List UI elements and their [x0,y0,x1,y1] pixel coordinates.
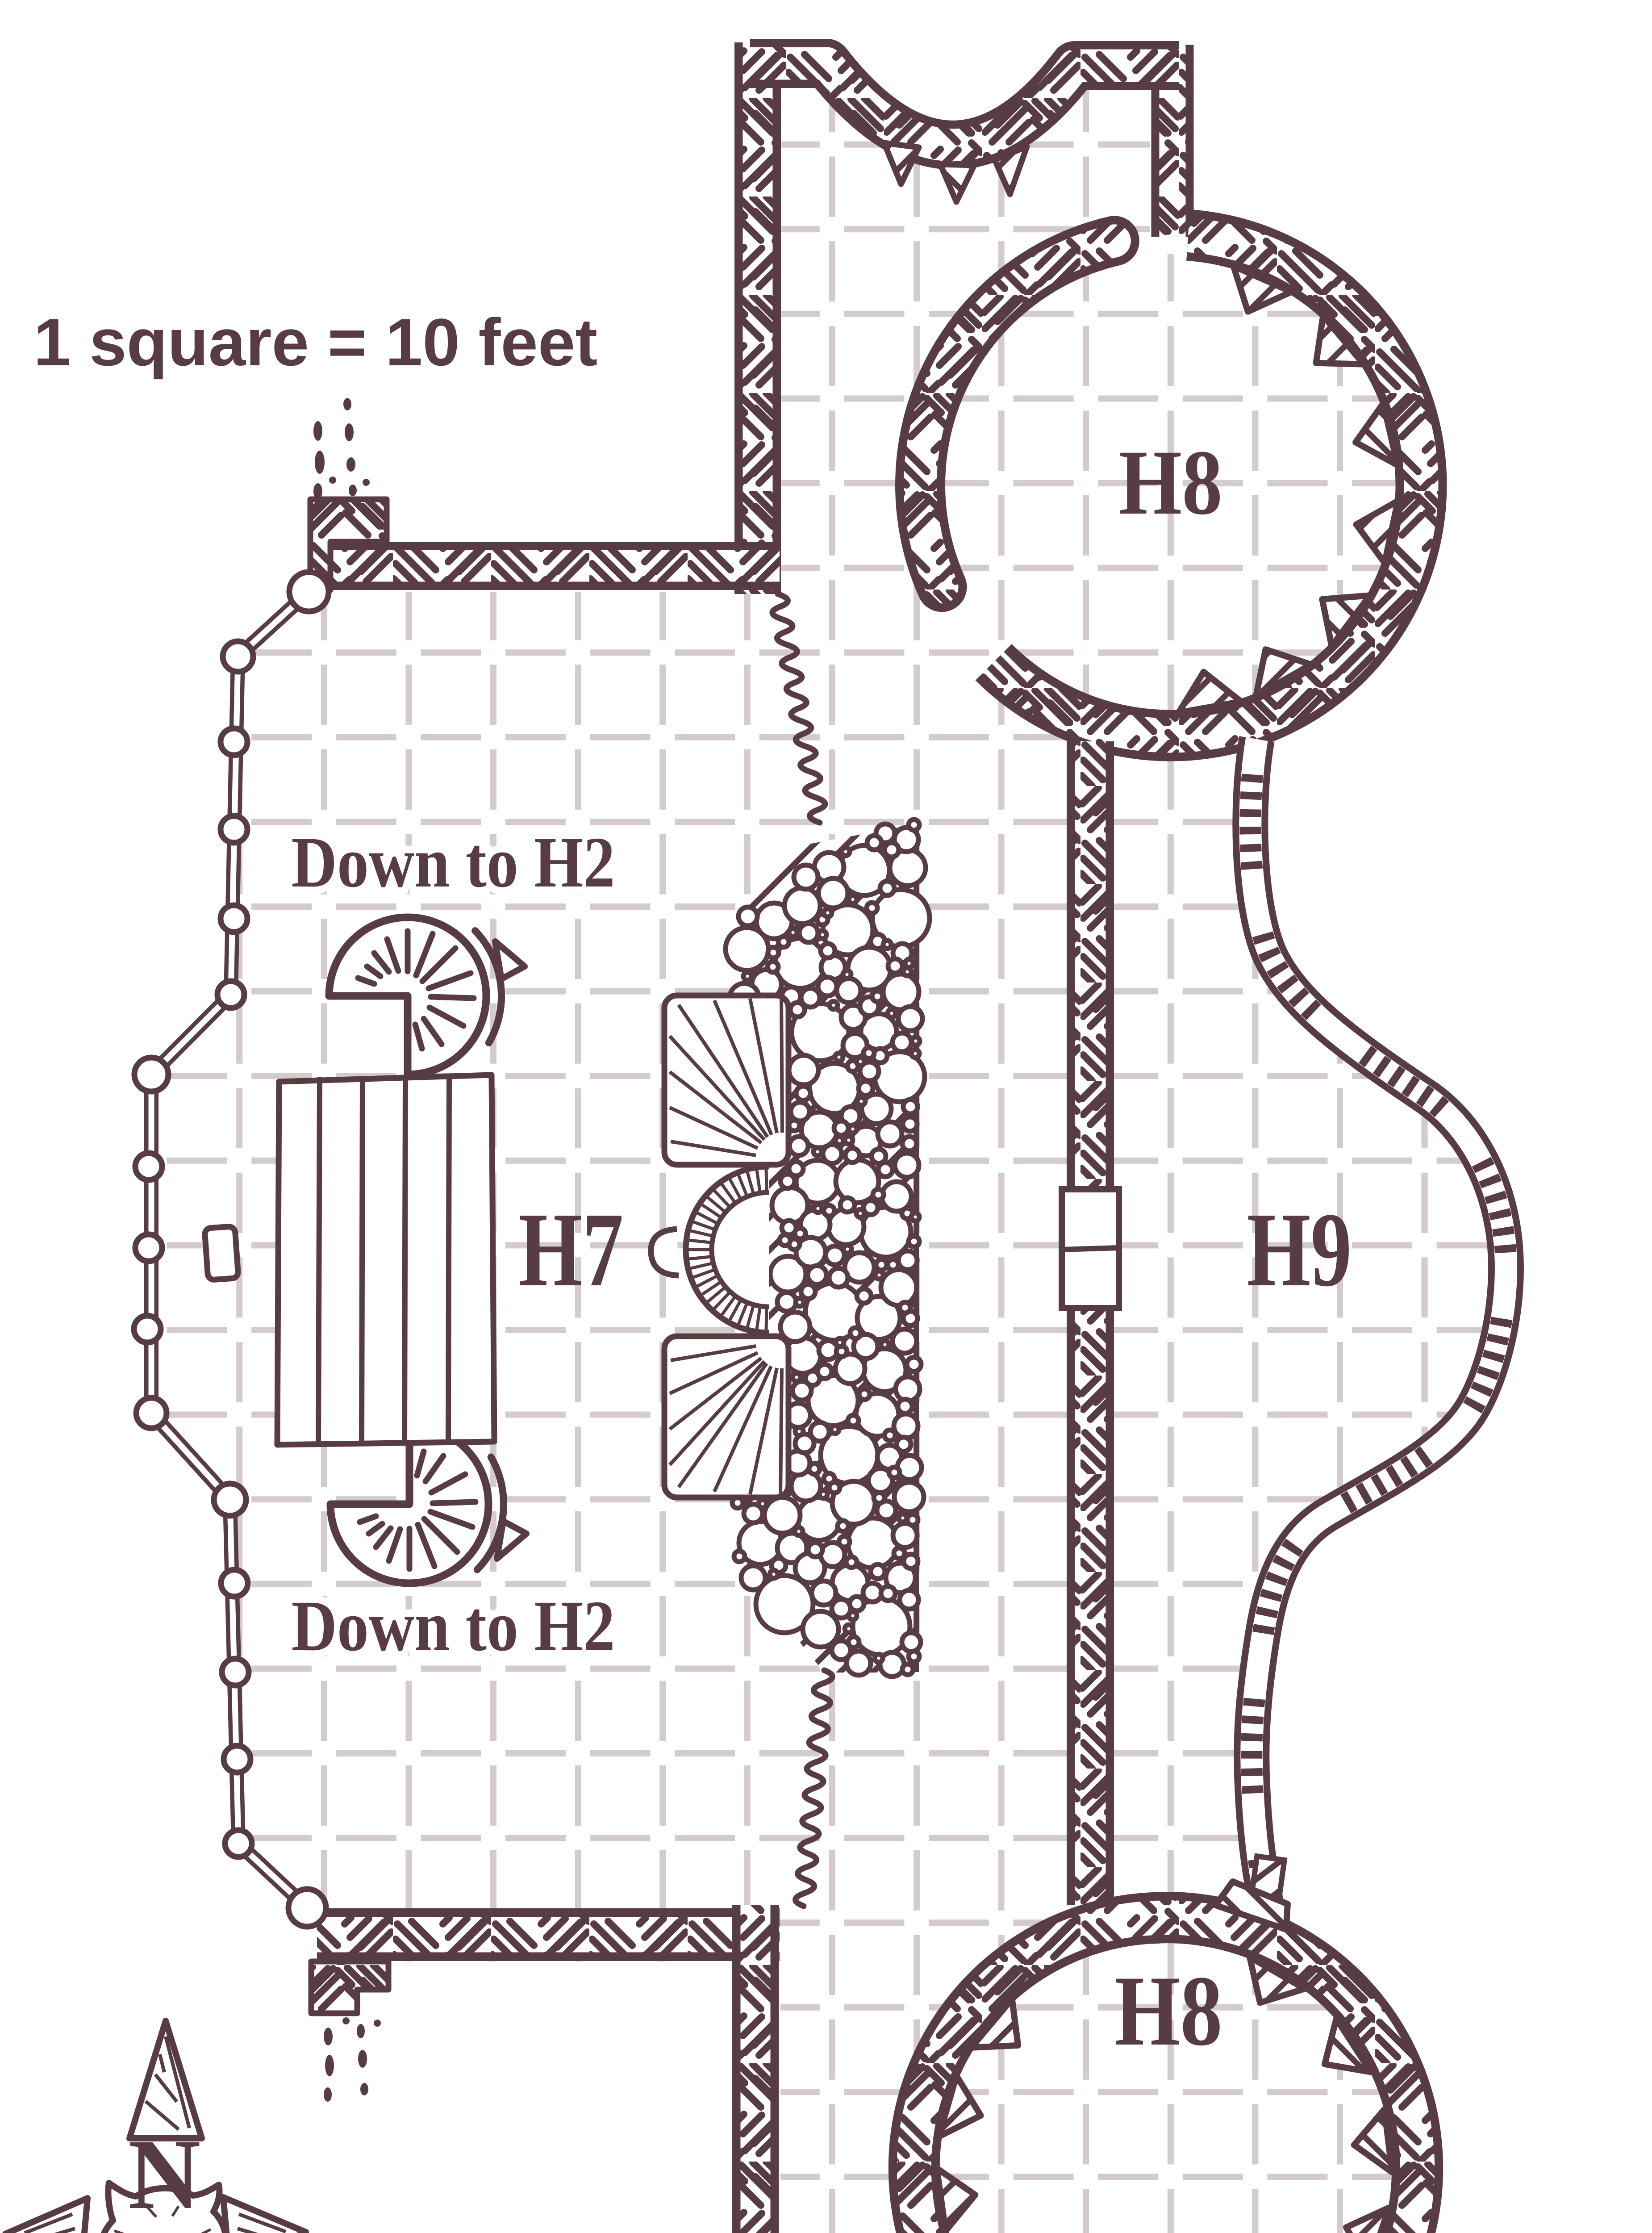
svg-text:Down to H2: Down to H2 [292,823,615,903]
svg-text:N: N [128,2118,201,2230]
svg-text:1 square = 10 feet: 1 square = 10 feet [33,305,597,380]
svg-text:H8: H8 [1119,431,1222,534]
svg-text:H7: H7 [519,1191,624,1309]
svg-text:H8: H8 [1114,1955,1222,2066]
svg-text:Down to H2: Down to H2 [292,1586,615,1666]
svg-text:H9: H9 [1247,1191,1352,1309]
